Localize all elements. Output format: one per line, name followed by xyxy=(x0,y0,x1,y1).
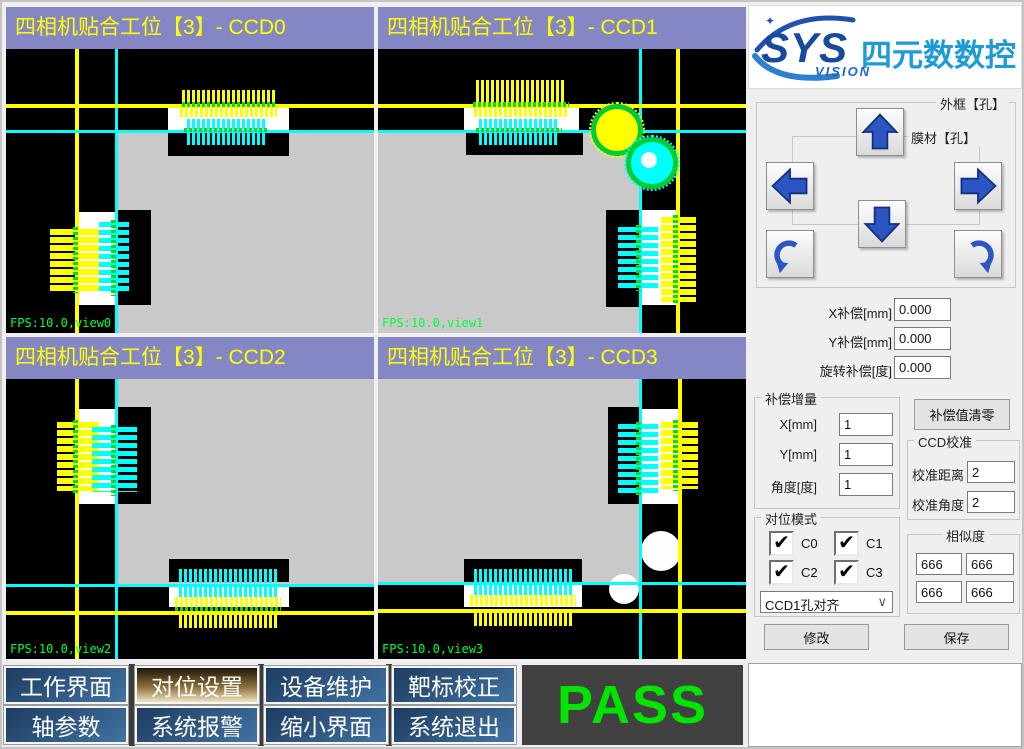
arrow-up-icon xyxy=(858,110,902,154)
frame-comb xyxy=(474,613,572,626)
rotate-cw-icon xyxy=(956,232,1000,276)
camera-view-ccd0: 四相机贴合工位【3】- CCD0 FPS:10.0,view0 xyxy=(6,7,374,333)
rotate-ccw-button[interactable] xyxy=(766,230,814,278)
frame-comb xyxy=(179,615,277,628)
jog-right-button[interactable] xyxy=(954,162,1002,210)
frame-comb xyxy=(470,595,576,606)
nav-device-maintenance-button[interactable]: 设备维护 xyxy=(264,666,388,704)
fiducial-hole-white xyxy=(609,574,639,604)
message-log-box[interactable] xyxy=(748,663,1022,747)
nav-minimize-ui-button[interactable]: 缩小界面 xyxy=(264,706,388,744)
similarity-field-3[interactable]: 666 xyxy=(966,581,1014,603)
crosshair-v-cyan xyxy=(639,379,642,659)
rotation-offset-label: 旋转补偿[度] xyxy=(772,361,892,380)
camera-image-ccd2: FPS:10.0,view2 xyxy=(6,379,374,659)
frame-comb xyxy=(180,107,277,117)
y-offset-field[interactable]: 0.000 xyxy=(894,327,951,350)
fps-readout: FPS:10.0,view1 xyxy=(382,316,483,330)
chevron-down-icon: ∨ xyxy=(877,594,887,610)
ccd-calibration-group-label: CCD校准 xyxy=(914,432,976,451)
check-icon: ✔ xyxy=(838,561,855,583)
checkbox-c0-label: C0 xyxy=(801,536,818,551)
increment-group-label: 补偿增量 xyxy=(761,389,821,408)
similarity-field-0[interactable]: 666 xyxy=(916,553,962,575)
checkbox-c3-label: C3 xyxy=(866,565,883,580)
panel-region xyxy=(115,130,374,333)
pass-status-text: PASS xyxy=(557,674,708,736)
increment-angle-field[interactable]: 1 xyxy=(839,473,893,496)
calibration-angle-field[interactable]: 2 xyxy=(967,491,1015,513)
camera-image-ccd3: FPS:10.0,view3 xyxy=(378,379,746,659)
film-comb xyxy=(474,585,572,595)
fps-readout: FPS:10.0,view0 xyxy=(10,316,111,330)
match-marks xyxy=(636,422,641,496)
crosshair-v-cyan xyxy=(115,379,118,659)
similarity-field-2[interactable]: 666 xyxy=(916,581,962,603)
panel-region xyxy=(378,130,639,333)
match-marks xyxy=(111,220,116,296)
fps-readout: FPS:10.0,view3 xyxy=(382,642,483,656)
similarity-field-1[interactable]: 666 xyxy=(966,553,1014,575)
increment-x-label: X[mm] xyxy=(755,417,817,432)
checkbox-c0[interactable]: ✔ xyxy=(769,531,794,556)
film-comb xyxy=(179,569,277,583)
frame-comb xyxy=(474,107,568,117)
fiducial-hole-center xyxy=(641,152,657,168)
align-mode-dropdown[interactable]: CCD1孔对齐 ∨ xyxy=(760,591,893,613)
align-mode-group-label: 对位模式 xyxy=(761,509,821,528)
nav-system-alarm-button[interactable]: 系统报警 xyxy=(135,706,259,744)
check-icon: ✔ xyxy=(773,532,790,554)
rotation-offset-field[interactable]: 0.000 xyxy=(894,356,951,379)
x-offset-label: X补偿[mm] xyxy=(772,303,892,322)
nav-system-exit-button[interactable]: 系统退出 xyxy=(392,706,516,744)
arrow-right-icon xyxy=(956,164,1000,208)
align-mode-group: 对位模式 ✔ C0 ✔ C1 ✔ C2 ✔ C3 CCD1孔对齐 ∨ xyxy=(754,517,900,617)
crosshair-h-cyan xyxy=(378,130,746,133)
brand-logo: ✦ SYS VISION 四元数数控 xyxy=(748,5,1022,89)
increment-y-label: Y[mm] xyxy=(755,447,817,462)
check-icon: ✔ xyxy=(838,532,855,554)
x-offset-field[interactable]: 0.000 xyxy=(894,298,951,321)
calibration-distance-field[interactable]: 2 xyxy=(967,461,1015,483)
app-window: 四相机贴合工位【3】- CCD0 FPS:10.0,view0 四相机贴合 xyxy=(0,0,1024,749)
match-marks xyxy=(636,225,641,291)
fps-readout: FPS:10.0,view2 xyxy=(10,642,111,656)
checkbox-c1-label: C1 xyxy=(866,536,883,551)
film-comb xyxy=(479,132,559,145)
checkbox-c3[interactable]: ✔ xyxy=(834,560,859,585)
increment-x-field[interactable]: 1 xyxy=(839,413,893,436)
crosshair-v-yellow xyxy=(678,379,682,659)
y-offset-label: Y补偿[mm] xyxy=(772,332,892,351)
logo-brand-text: 四元数数控 xyxy=(861,30,1016,75)
match-marks xyxy=(673,420,678,491)
nav-bar: 工作界面 对位设置 设备维护 靶标校正 轴参数 系统报警 缩小界面 系统退出 xyxy=(2,660,518,748)
rotate-cw-button[interactable] xyxy=(954,230,1002,278)
nav-target-calibration-button[interactable]: 靶标校正 xyxy=(392,666,516,704)
panel-region xyxy=(378,379,639,582)
match-marks xyxy=(111,425,116,496)
frame-comb xyxy=(661,217,696,302)
calibration-angle-label: 校准角度 xyxy=(912,495,964,514)
similarity-group: 相似度 666 666 666 666 xyxy=(907,534,1020,614)
checkbox-c2-label: C2 xyxy=(801,565,818,580)
nav-work-screen-button[interactable]: 工作界面 xyxy=(4,666,128,704)
outer-frame-group-label: 外框【孔】 xyxy=(936,94,1009,113)
increment-angle-label: 角度[度] xyxy=(755,477,817,496)
frame-comb xyxy=(476,80,566,104)
result-panel: PASS xyxy=(522,665,743,745)
match-marks xyxy=(73,420,78,493)
film-comb xyxy=(474,569,572,583)
arrow-down-icon xyxy=(860,202,904,246)
camera-view-ccd1: 四相机贴合工位【3】- CCD1 FPS:10.0,view1 xyxy=(378,7,746,333)
fiducial-hole-white xyxy=(641,531,681,571)
increment-group: 补偿增量 X[mm] 1 Y[mm] 1 角度[度] 1 xyxy=(754,397,900,509)
camera-title-ccd1: 四相机贴合工位【3】- CCD1 xyxy=(378,7,746,49)
nav-align-settings-button[interactable]: 对位设置 xyxy=(135,666,259,704)
calibration-distance-label: 校准距离 xyxy=(912,465,964,484)
jog-down-button[interactable] xyxy=(858,200,906,248)
match-marks xyxy=(175,607,281,611)
checkbox-c2[interactable]: ✔ xyxy=(769,560,794,585)
checkbox-c1[interactable]: ✔ xyxy=(834,531,859,556)
camera-view-ccd3: 四相机贴合工位【3】- CCD3 FPS:10.0,view3 xyxy=(378,337,746,659)
film-comb xyxy=(187,132,265,145)
camera-title-ccd3: 四相机贴合工位【3】- CCD3 xyxy=(378,337,746,379)
nav-axis-params-button[interactable]: 轴参数 xyxy=(4,706,128,744)
save-button[interactable]: 保存 xyxy=(904,624,1009,650)
similarity-group-label: 相似度 xyxy=(942,526,989,545)
modify-button[interactable]: 修改 xyxy=(764,624,869,650)
align-mode-dropdown-value: CCD1孔对齐 xyxy=(765,598,839,613)
panel-region xyxy=(115,379,374,584)
ccd-calibration-group: CCD校准 校准距离 2 校准角度 2 xyxy=(907,440,1020,520)
camera-title-ccd0: 四相机贴合工位【3】- CCD0 xyxy=(6,7,374,49)
check-icon: ✔ xyxy=(773,561,790,583)
match-marks xyxy=(673,215,678,304)
match-marks xyxy=(73,227,78,293)
jog-up-button[interactable] xyxy=(856,108,904,156)
camera-image-ccd1: FPS:10.0,view1 xyxy=(378,49,746,333)
arrow-left-icon xyxy=(768,164,812,208)
rotate-ccw-icon xyxy=(768,232,812,276)
frame-comb xyxy=(661,422,698,489)
camera-view-ccd2: 四相机贴合工位【3】- CCD2 FPS:10.0,view2 xyxy=(6,337,374,659)
film-group-label: 膜材【孔】 xyxy=(907,128,980,147)
camera-title-ccd2: 四相机贴合工位【3】- CCD2 xyxy=(6,337,374,379)
increment-y-field[interactable]: 1 xyxy=(839,443,893,466)
jog-left-button[interactable] xyxy=(766,162,814,210)
film-comb xyxy=(179,587,277,597)
clear-offset-button[interactable]: 补偿值清零 xyxy=(914,399,1010,430)
camera-image-ccd0: FPS:10.0,view0 xyxy=(6,49,374,333)
